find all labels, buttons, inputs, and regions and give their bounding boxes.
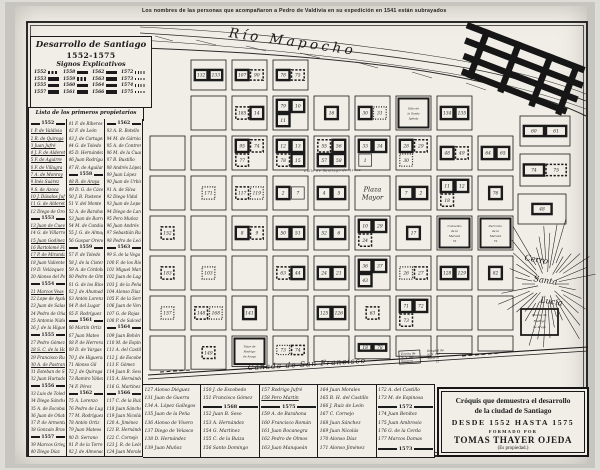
owner-entry: 160 Francisco Román (261, 420, 316, 428)
owner-entry: 68 P. de Herrera (69, 339, 104, 346)
legend-swatch (135, 84, 146, 86)
year-divider: 1559 (69, 244, 104, 251)
bottom-owners-strip: 127 Alonso Diéguez131 Juan de Guerra134 … (143, 384, 435, 458)
credit-box-inner: Cróquis que demuestra el desarrollo de l… (441, 391, 586, 454)
svg-text:75: 75 (295, 74, 301, 79)
svg-text:30: 30 (362, 112, 368, 117)
owner-entry: 156 Santo Domingo (203, 445, 258, 453)
legend-swatch (106, 71, 117, 74)
svg-text:171: 171 (204, 192, 212, 197)
svg-text:1: 1 (364, 159, 367, 164)
svg-text:16: 16 (329, 112, 335, 117)
owner-entry: 54 M. de Candia (69, 222, 104, 229)
owner-entry: 139 Juan Muñoz (145, 445, 200, 453)
svg-text:31: 31 (377, 112, 383, 117)
owner-entry: 92 Diego Vidal (107, 193, 142, 200)
svg-text:74: 74 (295, 349, 301, 354)
svg-text:13: 13 (295, 145, 301, 150)
owner-entry: 4 J. F. de Alderete (31, 149, 66, 156)
owner-entry: 162 Pedro de Olmos (261, 436, 316, 444)
legend-swatch (135, 91, 146, 93)
owner-entry: 18 Juan Valiente (31, 259, 66, 266)
year-divider: 1566 (107, 390, 142, 397)
owner-entry: 112 J. de Escobedo (107, 354, 142, 361)
year-legend: 1552155815621572155315591563157315551560… (31, 68, 151, 95)
svg-text:Molino de: Molino de (531, 313, 547, 317)
owner-entry: 173 M. de Espinosa (378, 395, 433, 403)
owner-entry: 23 Juan de Salas (31, 302, 66, 309)
svg-text:12: 12 (280, 145, 286, 150)
svg-text:9: 9 (255, 232, 258, 237)
rio-mapocho-label: Río Mapocho (227, 25, 357, 59)
legend-item: 1558 (63, 70, 90, 75)
owner-entry: 73 Ramiro Yáñez (69, 375, 104, 382)
map-block (437, 296, 472, 330)
svg-text:107: 107 (238, 74, 247, 79)
svg-text:11: 11 (280, 119, 286, 124)
legend-item: 1555 (34, 83, 61, 88)
owner-entry: 100 F. de los Ríos (107, 259, 142, 266)
svg-text:152: 152 (163, 232, 172, 237)
owner-entry: 95 Pero Muñoz (107, 215, 142, 222)
svg-text:8: 8 (241, 232, 244, 237)
owner-entry: 76 Pedro de Lugo (69, 405, 104, 412)
owner-entry: 124 Juan Morales (107, 448, 142, 455)
owner-entry: 47 H. de Aguilar (69, 164, 104, 171)
owner-entry: 51 V. del Monte (69, 200, 104, 207)
owner-entry: 36 Juan de Oñate (31, 412, 66, 419)
svg-text:95: 95 (239, 145, 245, 150)
svg-text:14: 14 (254, 112, 260, 117)
legend-heading: Signos Explicativos (31, 60, 151, 68)
legend-item: 1566 (92, 90, 119, 95)
owner-entry: 12 Diego de Oro (31, 208, 66, 215)
year-divider: 1562 (69, 390, 104, 397)
owner-entry: 170 Alonso Díaz (320, 436, 375, 444)
svg-text:134: 134 (443, 112, 452, 117)
owner-entry: 75 A. Lorenzo (69, 397, 104, 404)
svg-text:56: 56 (336, 145, 342, 150)
owner-entry: 88 Andrés López (107, 164, 142, 171)
owner-entry: 104 Alonso Díaz (107, 288, 142, 295)
owner-entry: 109 Juan Bohón (107, 332, 142, 339)
svg-text:24: 24 (361, 239, 368, 244)
legend-item: 1574 (121, 83, 148, 88)
owner-entry: 155 C. de la Buiza (203, 436, 258, 444)
title-box: Desarrollo de Santiago 1552-1575 Signos … (30, 36, 152, 108)
legend-item: 1575 (121, 90, 148, 95)
owner-entry: 113 F. Gómez (107, 361, 142, 368)
svg-text:55: 55 (321, 145, 327, 150)
svg-text:63: 63 (370, 312, 376, 317)
owner-entry: 107 G. de Rojas (107, 310, 142, 317)
credit-box: Cróquis que demuestra el desarrollo de l… (437, 387, 589, 457)
map-block (273, 296, 308, 330)
owner-entry: 39 Marcos Griego (31, 441, 66, 448)
owner-entry: 61 G. de los Ríos (69, 281, 104, 288)
map-block (150, 176, 185, 210)
legend-item: 1564 (92, 83, 119, 88)
legend-swatch (77, 71, 88, 74)
map-block (191, 96, 226, 130)
legend-item: 1559 (63, 77, 90, 82)
credit-line-6: (Es propiedad.) (442, 446, 585, 451)
svg-text:57: 57 (321, 159, 327, 164)
owner-entry: 152 Juan B. Seso (203, 411, 258, 419)
svg-text:Merced: Merced (448, 234, 460, 238)
owners-column-1: 15521 P. de Valdivia2 R. de Quiroga3 Jua… (29, 119, 67, 456)
year-divider: 1558 (69, 171, 104, 178)
owner-entry: 41 F. de Riberos (69, 120, 104, 127)
bottom-column-1: 127 Alonso Diéguez131 Juan de Guerra134 … (143, 385, 201, 457)
owner-entry: 93 Juan de Lepe (107, 200, 142, 207)
owner-entry: 82 J. de Almonacid (69, 448, 104, 455)
svg-text:de Araya: de Araya (533, 325, 546, 329)
svg-text:60: 60 (531, 130, 537, 135)
year-divider: 1575 (261, 403, 316, 411)
svg-text:12: 12 (459, 185, 465, 190)
owner-entry: 5 F. de Aguirre (31, 156, 66, 163)
legend-item: 1557 (34, 90, 61, 95)
svg-text:78: 78 (280, 159, 286, 164)
owner-entry: 44 G. de Toledo (69, 142, 104, 149)
owner-entry: 38 Gonzalo Bravo (31, 426, 66, 433)
owner-entry: 87 B. Bustillo (107, 156, 142, 163)
owner-entry: 171 Alonso Jiménez (320, 445, 375, 453)
owner-entry: 121 B. Hernández (107, 426, 142, 433)
cerro-label-line3: Lucía (538, 294, 563, 308)
owner-entry: 102 Juan de Lagos (107, 273, 142, 280)
owner-entry: 30 A. de Pastrana (31, 361, 66, 368)
owner-entry: 16 Bartolomé Flores (31, 244, 66, 251)
year-divider: 1564 (107, 324, 142, 331)
owner-entry: 127 Alonso Diéguez (145, 387, 200, 395)
owner-entry: 120 A. Jiménez (107, 419, 142, 426)
owner-entry: 122 C. Cornejo (107, 434, 142, 441)
svg-text:183: 183 (163, 272, 172, 277)
svg-text:71: 71 (403, 305, 409, 310)
svg-text:18: 18 (362, 346, 368, 351)
owner-entry: 63 Antón Lorenzo (69, 295, 104, 302)
owner-entry: 74 F. Pérez (69, 383, 104, 390)
owner-entry: 101 Miguel Martín (107, 266, 142, 273)
credit-author: TOMAS THAYER OJEDA (442, 435, 585, 445)
svg-text:141: 141 (245, 312, 253, 317)
owner-entry: 94 Diego de Lara (107, 208, 142, 215)
year-divider: 1557 (31, 434, 66, 441)
svg-text:29: 29 (417, 145, 424, 150)
credit-line-1: Cróquis que demuestra el desarrollo (442, 396, 585, 405)
svg-text:82: 82 (493, 272, 499, 277)
owner-entry: 43 J. de Cartagena (69, 135, 104, 142)
owner-entry: 81 P. de la Torre (69, 441, 104, 448)
svg-text:21: 21 (335, 272, 342, 277)
owner-entry: 110 M. de Espinosa (107, 339, 142, 346)
owner-entry: 159 A. de Barahona (261, 411, 316, 419)
owner-entry: 49 D. G. de Cáceres (69, 186, 104, 193)
svg-text:Convento: Convento (448, 224, 462, 228)
svg-text:72: 72 (418, 305, 424, 310)
svg-text:73: 73 (280, 349, 286, 354)
legend-swatch (135, 71, 146, 73)
owner-entry: 136 Alonso de Vivero (145, 420, 200, 428)
legend-swatch (77, 90, 88, 93)
owners-column-3: 156283 A. R. Botello84 M. de Gárnica85 A… (105, 119, 143, 456)
owner-entry: 42 F. de León (69, 127, 104, 134)
owner-entry: 98 Pedro de León (107, 237, 142, 244)
svg-text:Socorro: Socorro (401, 359, 413, 364)
owner-entry: 77 M. Rodríguez (69, 412, 104, 419)
svg-text:33: 33 (362, 145, 368, 150)
svg-text:de la: de la (451, 229, 458, 233)
svg-text:36: 36 (362, 265, 368, 270)
year-divider: 1552 (31, 120, 66, 127)
svg-text:77: 77 (239, 159, 245, 164)
bottom-column-3: 157 Rodrigo Jufré158 Pero Martín1575159 … (260, 385, 318, 457)
owner-entry: 154 G. Martínez (203, 428, 258, 436)
owner-entry: 123 J. R. de León (107, 441, 142, 448)
svg-text:73: 73 (403, 319, 409, 324)
legend-swatch (135, 78, 146, 80)
svg-text:30: 30 (403, 159, 409, 164)
owner-entry: 176 G. de la Cerda (378, 428, 433, 436)
owner-entry: 26 J. de la Higuera (31, 324, 66, 331)
owner-entry: 15 Juan Godínez (31, 237, 66, 244)
svg-text:125: 125 (320, 312, 329, 317)
svg-text:Sitio de: Sitio de (408, 106, 420, 110)
owner-entry: 99 S. de la Vega (107, 251, 142, 258)
svg-text:119: 119 (253, 192, 262, 197)
svg-text:90: 90 (254, 74, 260, 79)
svg-text:2: 2 (418, 192, 422, 197)
owner-entry: 32 Juan Hurtado (31, 375, 66, 382)
bottom-column-5: 172 A. del Castillo173 M. de Espinosa157… (377, 385, 435, 457)
owner-entry: 29 Francisco Rubio (31, 354, 66, 361)
owner-entry: 89 Juan López (107, 171, 142, 178)
map-block (478, 336, 513, 351)
street-label-santiago-de-azoca: Calle de Santiago de Azoca (304, 168, 361, 173)
map-block (150, 336, 185, 370)
svg-text:24: 24 (320, 272, 327, 277)
owner-entry: 28 S. C. de la Hoz (31, 346, 66, 353)
svg-text:128: 128 (443, 272, 452, 277)
owner-entry: 46 Juan Rodríguez (69, 156, 104, 163)
bottom-column-2: 150 J. de Escobedo151 Francisco Gómez156… (201, 385, 259, 457)
owner-entry: 86 M. de la Cuadra (107, 149, 142, 156)
owner-entry: 85 A. de Contreras (107, 142, 142, 149)
owner-entry: 84 M. de Gárnica (107, 135, 142, 142)
owner-entry: 116 G. Martínez (107, 383, 142, 390)
owner-entry: 168 Juan Sánchez (320, 420, 375, 428)
svg-text:129: 129 (458, 272, 467, 277)
credit-line-3: DESDE 1552 HASTA 1575 (442, 418, 585, 427)
svg-text:64: 64 (485, 152, 491, 157)
owner-entry: 78 Antón Ortiz (69, 419, 104, 426)
svg-text:149: 149 (204, 351, 213, 356)
svg-text:de la: de la (492, 229, 499, 233)
svg-text:Del Conv.: Del Conv. (488, 224, 503, 228)
owner-entry: 20 Alonso del Pozo (31, 273, 66, 280)
owner-entry: 56 Gaspar Orense (69, 237, 104, 244)
svg-text:27: 27 (417, 272, 424, 277)
owner-entry: 11 G. de Alderete (31, 200, 66, 207)
owner-entry: 137 Diego de Velasco (145, 428, 200, 436)
legend-swatch (106, 77, 117, 80)
owner-entry: 55 J. G. de Almagro (69, 229, 104, 236)
svg-text:Iglesia: Iglesia (408, 116, 419, 120)
map-block (191, 136, 226, 170)
svg-text:43: 43 (361, 279, 368, 284)
owner-entry: 59 A. de Córdoba (69, 266, 104, 273)
svg-text:74: 74 (531, 169, 537, 174)
svg-text:135: 135 (458, 112, 467, 117)
owner-entry: 22 Lope de Ayala (31, 295, 66, 302)
legend-swatch (106, 84, 117, 87)
svg-text:18: 18 (444, 199, 450, 204)
year-divider: 1562 (107, 120, 142, 127)
owner-entry: 79 Juan Mateos (69, 426, 104, 433)
owner-entry: 64 P. del Lugar (69, 302, 104, 309)
owner-entry: 158 Pero Martín (261, 395, 316, 403)
owner-entry: 37 P. de Armenta (31, 419, 66, 426)
owner-entry: 2 R. de Quiroga (31, 135, 66, 142)
svg-text:72: 72 (494, 239, 498, 243)
svg-text:Tejar de: Tejar de (244, 345, 256, 349)
svg-text:Mayor: Mayor (361, 194, 384, 202)
owner-entry: 52 A. de Barahona (69, 208, 104, 215)
legend-swatch (106, 90, 117, 93)
owner-entry: 135 Juan de la Peña (145, 411, 200, 419)
owner-entry: 19 D. Velázquez (31, 266, 66, 273)
map-title: Desarrollo de Santiago (31, 40, 151, 50)
owner-entry: 3 Juan Jufré (31, 142, 66, 149)
year-divider: 1556 (31, 383, 66, 390)
owner-entry: 83 A. R. Botello (107, 127, 142, 134)
svg-text:11: 11 (444, 185, 450, 190)
legend-swatch (48, 84, 59, 87)
map-block (191, 216, 226, 250)
map-block (232, 256, 267, 290)
owner-entry: 91 A. de Silva (107, 186, 142, 193)
owner-entry: 153 A. Hernández (203, 420, 258, 428)
owner-entry: 35 A. de Escobar (31, 405, 66, 412)
svg-text:76: 76 (493, 192, 499, 197)
owner-entry: 34 Diego Sánchez (31, 397, 66, 404)
legend-swatch (48, 90, 59, 93)
svg-text:10: 10 (362, 225, 368, 230)
svg-text:49: 49 (458, 152, 465, 157)
owner-entry: 1 P. de Valdivia (31, 127, 66, 134)
owners-list: 15521 P. de Valdivia2 R. de Quiroga3 Jua… (28, 119, 143, 457)
legend-item: 1562 (92, 70, 119, 75)
owner-entry: 24 Pedro de Oña (31, 310, 66, 317)
owner-entry: 96 Juan Andrés (107, 222, 142, 229)
owner-entry: 57 F. de Toledo (69, 251, 104, 258)
svg-text:Plaza: Plaza (363, 186, 382, 194)
photograph-of-map: Los nombres de las personas que acompaña… (0, 0, 600, 470)
credit-line-4: FORMADO POR (442, 429, 585, 434)
map-block (150, 136, 185, 170)
svg-text:132: 132 (197, 74, 206, 79)
owner-entry: 105 F. de la Serna (107, 295, 142, 302)
svg-text:5: 5 (337, 192, 340, 197)
owner-entry: 114 Juan B. Seso (107, 368, 142, 375)
owner-entry: 70 J. de Higueras (69, 354, 104, 361)
owner-entry: 33 Luis de Toledo (31, 390, 66, 397)
svg-text:148: 148 (197, 312, 206, 317)
year-divider: 1554 (31, 281, 66, 288)
owner-entry: 66 Martín Ortiz (69, 324, 104, 331)
svg-text:79: 79 (280, 105, 286, 110)
svg-text:51: 51 (295, 232, 301, 237)
owner-entry: 48 R. de Araya (69, 178, 104, 185)
svg-text:185: 185 (238, 112, 247, 117)
owner-entry: 21 Marcos Veas (31, 288, 66, 295)
svg-text:17: 17 (411, 232, 417, 237)
owner-entry: 17 P. de Miranda (31, 251, 66, 258)
owner-entry: 163 Juan Manqueán (261, 445, 316, 453)
legend-swatch (77, 77, 88, 80)
svg-text:10: 10 (295, 105, 301, 110)
svg-text:48: 48 (443, 152, 450, 157)
svg-text:15: 15 (435, 359, 439, 363)
owner-entry: 62 J. de Ahumada (69, 288, 104, 295)
year-divider: 1555 (31, 332, 66, 339)
owner-entry: 161 Juan Bocanegra (261, 428, 316, 436)
owner-entry: 27 Pedro Gómez (31, 339, 66, 346)
owner-entry: 80 D. Serrano (69, 434, 104, 441)
owner-entry: 53 Juan de Barros (69, 215, 104, 222)
year-divider: 1573 (378, 445, 433, 453)
svg-text:4: 4 (322, 192, 326, 197)
owner-entry: 90 Juan de Urbina (107, 178, 142, 185)
owner-entry: 69 D. de Vargas (69, 346, 104, 353)
svg-text:78: 78 (377, 346, 383, 351)
svg-text:74: 74 (254, 145, 260, 150)
legend-item: 1560 (63, 83, 90, 88)
molino-rodrigo-de-araya: Molino de Rodrigo de Araya (521, 309, 558, 335)
cerro-label-line2: Santa (533, 273, 558, 287)
map-block (478, 296, 513, 330)
owner-entry: 7 A. de Monroy (31, 171, 66, 178)
svg-text:Rodrigo: Rodrigo (533, 319, 546, 323)
svg-text:6: 6 (337, 232, 340, 237)
svg-text:65: 65 (500, 152, 506, 157)
owner-entry: 45 D. Hernández (69, 149, 104, 156)
svg-text:7: 7 (296, 192, 299, 197)
legend-item: 1561 (63, 90, 90, 95)
owner-entry: 118 Juan Sánchez (107, 405, 142, 412)
owner-entry: 60 Pedro de Olmos (69, 273, 104, 280)
owner-entry: 174 Juan Benítez (378, 411, 433, 419)
svg-text:168: 168 (212, 312, 221, 317)
owner-entry: 115 A. Hernández (107, 375, 142, 382)
owner-entry: 134 A. López Gallegos (145, 403, 200, 411)
owner-entry: 106 Juan de Vera (107, 302, 142, 309)
legend-item: 1553 (34, 77, 61, 82)
legend-swatch (48, 71, 59, 74)
year-divider: 1572 (378, 403, 433, 411)
legend-swatch (77, 84, 88, 87)
svg-text:50: 50 (280, 232, 286, 237)
owner-entry: 97 Sebastián Ruiz (107, 229, 142, 236)
owner-entry: 71 Alonso Gil (69, 361, 104, 368)
svg-text:78: 78 (280, 74, 286, 79)
owner-entry: 10 J. Dávalos Jufré (31, 193, 66, 200)
owner-entry: 117 C. de la Buiza (107, 397, 142, 404)
year-divider: 1553 (31, 215, 66, 222)
svg-text:157: 157 (163, 312, 172, 317)
